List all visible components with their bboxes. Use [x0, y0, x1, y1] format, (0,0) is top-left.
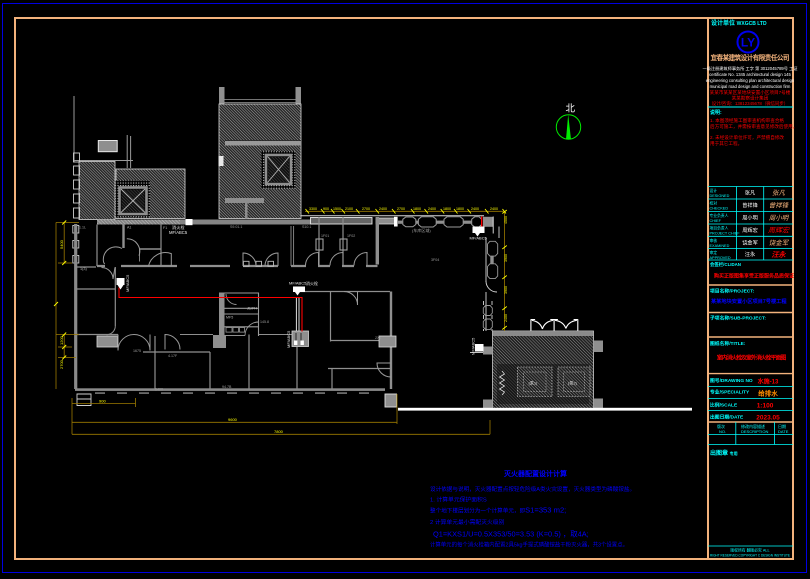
svg-text:校对: 校对	[710, 201, 718, 206]
svg-text:北: 北	[566, 104, 576, 115]
svg-text:2X1: 2X1	[375, 336, 381, 340]
svg-text:S9.01.1: S9.01.1	[230, 225, 242, 229]
svg-text:3900: 3900	[504, 254, 508, 262]
svg-text:某某地块安置小区项目7号楼工程: 某某地块安置小区项目7号楼工程	[711, 297, 787, 305]
svg-text:2400: 2400	[471, 207, 479, 211]
svg-text:MF5: MF5	[226, 316, 233, 320]
svg-text:1800: 1800	[413, 207, 421, 211]
svg-text:给排水: 给排水	[758, 389, 778, 398]
svg-text:灭火器配置设计计算: 灭火器配置设计计算	[503, 469, 567, 478]
svg-text:A1: A1	[127, 226, 131, 230]
svg-text:设计单位 WXGCB LTD: 设计单位 WXGCB LTD	[711, 19, 767, 27]
svg-text:审核: 审核	[710, 238, 718, 243]
svg-text:2700: 2700	[397, 207, 405, 211]
svg-text:145.8: 145.8	[260, 320, 269, 324]
svg-text:会签栏/CLIDAN: 会签栏/CLIDAN	[710, 261, 741, 268]
svg-text:1.1L: 1.1L	[79, 226, 86, 230]
svg-text:比例/SCALE: 比例/SCALE	[710, 402, 738, 409]
svg-text:(车库区域): (车库区域)	[412, 227, 431, 233]
svg-text:F1: F1	[163, 226, 167, 230]
svg-text:出图章 专用: 出图章 专用	[710, 449, 738, 457]
svg-text:MF/ABC5: MF/ABC5	[125, 274, 130, 292]
svg-text:张凡: 张凡	[772, 189, 786, 197]
svg-text:1F01: 1F01	[321, 234, 329, 238]
svg-text:900: 900	[323, 207, 329, 211]
svg-text:周小明: 周小明	[769, 214, 790, 222]
svg-text:周辉宏: 周辉宏	[742, 226, 758, 234]
svg-text:2 计算单元最小需配灭火级别: 2 计算单元最小需配灭火级别	[430, 518, 505, 526]
svg-text:专业/SPECIALITY: 专业/SPECIALITY	[710, 389, 750, 396]
svg-text:J1/FH: J1/FH	[247, 307, 257, 311]
svg-text:购买正版图集享受正版服务品质保证: 购买正版图集享受正版服务品质保证	[714, 273, 794, 280]
svg-text:说明:: 说明:	[710, 109, 722, 116]
svg-text:S10.1: S10.1	[302, 225, 311, 229]
svg-text:一级注册建筑师事务所 工字 第 3012045789号 工证: 一级注册建筑师事务所 工字 第 3012045789号 工证	[703, 65, 799, 72]
svg-text:1800: 1800	[456, 207, 464, 211]
svg-text:张凡: 张凡	[745, 189, 756, 197]
svg-text:2023.05: 2023.05	[756, 415, 780, 422]
svg-text:图纸名称/TITLE:: 图纸名称/TITLE:	[710, 340, 746, 347]
svg-text:2400: 2400	[490, 207, 498, 211]
svg-text:子项名称/SUB-PROJECT:: 子项名称/SUB-PROJECT:	[710, 315, 766, 322]
svg-text:certificate No. 1345 architect: certificate No. 1345 architectural desig…	[709, 72, 791, 77]
svg-text:图号/DRAWING NO: 图号/DRAWING NO	[710, 377, 753, 384]
svg-text:设计/咨询：13812345678（微信同步）: 设计/咨询：13812345678（微信同步）	[712, 100, 788, 107]
svg-text:版权所有 翻版必究 ALL: 版权所有 翻版必究 ALL	[730, 548, 769, 553]
svg-text:APPROVED: APPROVED	[710, 256, 731, 260]
svg-text:3900: 3900	[504, 286, 508, 294]
svg-text:专业负责人: 专业负责人	[710, 213, 729, 218]
svg-text:宜春某建筑设计有限责任公司: 宜春某建筑设计有限责任公司	[711, 53, 790, 62]
svg-text:1500: 1500	[333, 207, 341, 211]
svg-text:NO.: NO.	[719, 429, 726, 434]
svg-text:2700: 2700	[362, 207, 370, 211]
svg-text:MF/ABC5: MF/ABC5	[289, 281, 307, 286]
svg-text:(泵2): (泵2)	[568, 381, 578, 386]
svg-text:饶金军: 饶金军	[769, 239, 790, 247]
svg-text:MF/ABC5: MF/ABC5	[286, 330, 291, 348]
svg-text:消火栓: 消火栓	[306, 280, 318, 286]
svg-text:(泵1): (泵1)	[529, 381, 539, 386]
svg-text:2400: 2400	[504, 314, 508, 322]
svg-text:1800: 1800	[443, 207, 451, 211]
svg-text:municipal road design and cons: municipal road design and construction f…	[710, 84, 791, 89]
svg-text:CHIEF: CHIEF	[710, 219, 722, 223]
svg-text:4.17F: 4.17F	[168, 354, 178, 358]
svg-text:LY: LY	[741, 36, 755, 50]
svg-text:1. 计算单元保护面积S: 1. 计算单元保护面积S	[430, 496, 487, 504]
svg-text:项目负责人: 项目负责人	[710, 226, 729, 231]
svg-text:1. 本图须经施工图审查机构审查合格: 1. 本图须经施工图审查机构审查合格	[710, 117, 784, 124]
svg-text:1:100: 1:100	[757, 403, 774, 410]
svg-text:汪永: 汪永	[745, 250, 755, 258]
svg-text:EXAMINED: EXAMINED	[710, 244, 730, 248]
svg-text:用于其它工程。: 用于其它工程。	[710, 140, 742, 147]
svg-text:9600: 9600	[228, 417, 238, 422]
svg-text:1675: 1675	[133, 349, 141, 353]
svg-text:2. 未经设计单位许可，严禁擅自修改: 2. 未经设计单位许可，严禁擅自修改	[710, 134, 784, 141]
svg-text:曾祥锋: 曾祥锋	[742, 201, 758, 209]
svg-text:周小明: 周小明	[742, 214, 758, 222]
svg-text:2700: 2700	[59, 359, 64, 369]
svg-text:2400: 2400	[379, 207, 387, 211]
svg-text:后方可施工，并需按审查意见修改后使用。: 后方可施工，并需按审查意见修改后使用。	[710, 123, 797, 130]
svg-text:2100: 2100	[345, 207, 353, 211]
svg-text:曾祥锋: 曾祥锋	[769, 202, 790, 210]
svg-text:周辉宏: 周辉宏	[768, 227, 790, 235]
svg-text:7800: 7800	[274, 429, 284, 434]
svg-text:Q1=KXS1/U=0.5X353/50=3.53 (K=0: Q1=KXS1/U=0.5X353/50=3.53 (K=0.5) ，取4A;	[433, 530, 589, 539]
svg-text:汪永: 汪永	[772, 250, 787, 259]
svg-text:审定: 审定	[710, 250, 718, 255]
svg-text:设计依据与说明，灭火器配置点按轻危险级A类火灾设置，灭火器类: 设计依据与说明，灭火器配置点按轻危险级A类火灾设置，灭火器类型为磷酸铵盐。	[430, 485, 635, 493]
svg-text:1F02: 1F02	[347, 234, 355, 238]
svg-text:DATE: DATE	[778, 429, 789, 434]
svg-text:MF/ABC5: MF/ABC5	[470, 236, 488, 241]
svg-text:4500: 4500	[504, 216, 508, 224]
svg-text:室内消火栓及室外消火栓平面图: 室内消火栓及室外消火栓平面图	[717, 354, 787, 362]
svg-text:DESCRIPTION: DESCRIPTION	[741, 429, 768, 434]
svg-text:出图日期/DATE: 出图日期/DATE	[710, 414, 744, 421]
svg-text:项目名称/PROJECT:: 项目名称/PROJECT:	[710, 288, 755, 295]
svg-text:2400: 2400	[428, 207, 436, 211]
svg-text:PROJECT CHIEF: PROJECT CHIEF	[710, 232, 741, 236]
svg-text:1(3): 1(3)	[80, 267, 87, 271]
svg-text:CHECKED: CHECKED	[710, 207, 729, 211]
svg-text:3F04: 3F04	[431, 258, 439, 262]
svg-text:engineering consulting plan ar: engineering consulting plan architectura…	[706, 78, 795, 83]
svg-text:6400: 6400	[155, 388, 163, 392]
svg-text:1200: 1200	[59, 335, 64, 345]
svg-text:水施-13: 水施-13	[758, 378, 779, 386]
svg-text:3300: 3300	[309, 207, 317, 211]
svg-text:5400: 5400	[59, 239, 64, 249]
svg-text:设计: 设计	[710, 188, 718, 193]
svg-text:MF/ABC5: MF/ABC5	[169, 230, 188, 235]
svg-text:RIGHT RESERVED.COPYRIGHT C DES: RIGHT RESERVED.COPYRIGHT C DESIGN INSTIT…	[710, 554, 790, 558]
svg-text:94.7B: 94.7B	[222, 385, 232, 389]
svg-text:900: 900	[99, 399, 106, 404]
svg-text:饶金军: 饶金军	[742, 238, 758, 246]
svg-text:DESIGNED: DESIGNED	[710, 194, 730, 198]
svg-text:计算单元的每个消火栓箱内配置2具5kg手提式磷酸铵盐干粉灭火: 计算单元的每个消火栓箱内配置2具5kg手提式磷酸铵盐干粉灭火器，共3个设置点。	[430, 541, 628, 549]
